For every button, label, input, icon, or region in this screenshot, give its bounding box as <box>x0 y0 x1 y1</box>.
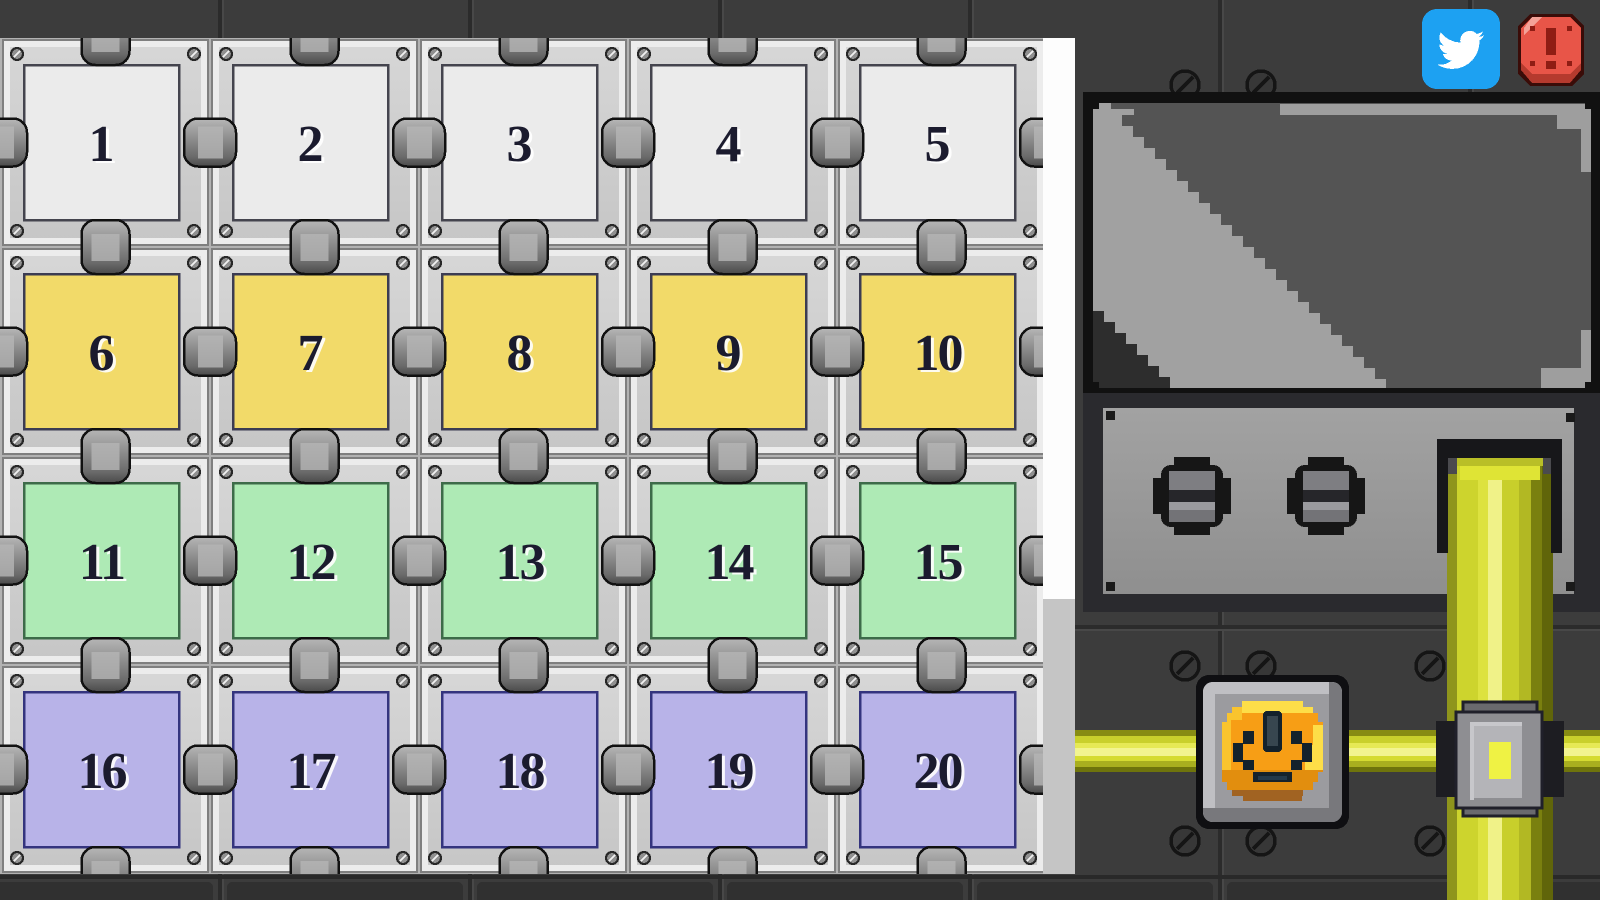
svg-text:19: 19 <box>705 743 754 800</box>
svg-text:8: 8 <box>507 325 533 382</box>
svg-text:17: 17 <box>287 743 336 800</box>
svg-text:3: 3 <box>507 116 533 173</box>
svg-text:16: 16 <box>78 743 127 800</box>
svg-text:14: 14 <box>705 534 755 591</box>
svg-text:10: 10 <box>914 325 963 382</box>
svg-text:2: 2 <box>298 116 324 173</box>
svg-text:6: 6 <box>89 325 115 382</box>
svg-text:1: 1 <box>89 116 115 173</box>
svg-text:4: 4 <box>716 116 742 173</box>
svg-text:11: 11 <box>79 534 124 591</box>
svg-text:15: 15 <box>914 534 963 591</box>
svg-text:9: 9 <box>716 325 742 382</box>
svg-text:12: 12 <box>287 534 335 591</box>
svg-text:7: 7 <box>298 325 324 382</box>
svg-text:5: 5 <box>925 116 951 173</box>
svg-text:18: 18 <box>496 743 545 800</box>
svg-text:13: 13 <box>496 534 545 591</box>
svg-text:20: 20 <box>914 743 963 800</box>
